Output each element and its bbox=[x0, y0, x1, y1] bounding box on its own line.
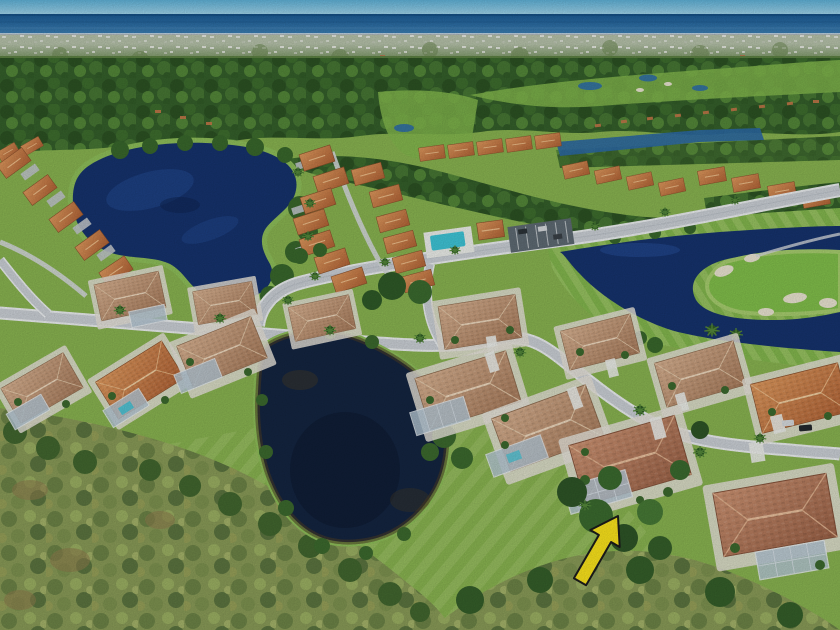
photo-grain-overlay bbox=[0, 0, 840, 630]
aerial-photo-svg: Aerial drone photo of a Florida golf-cou… bbox=[0, 0, 840, 630]
aerial-photo: Aerial drone photo of a Florida golf-cou… bbox=[0, 0, 840, 630]
